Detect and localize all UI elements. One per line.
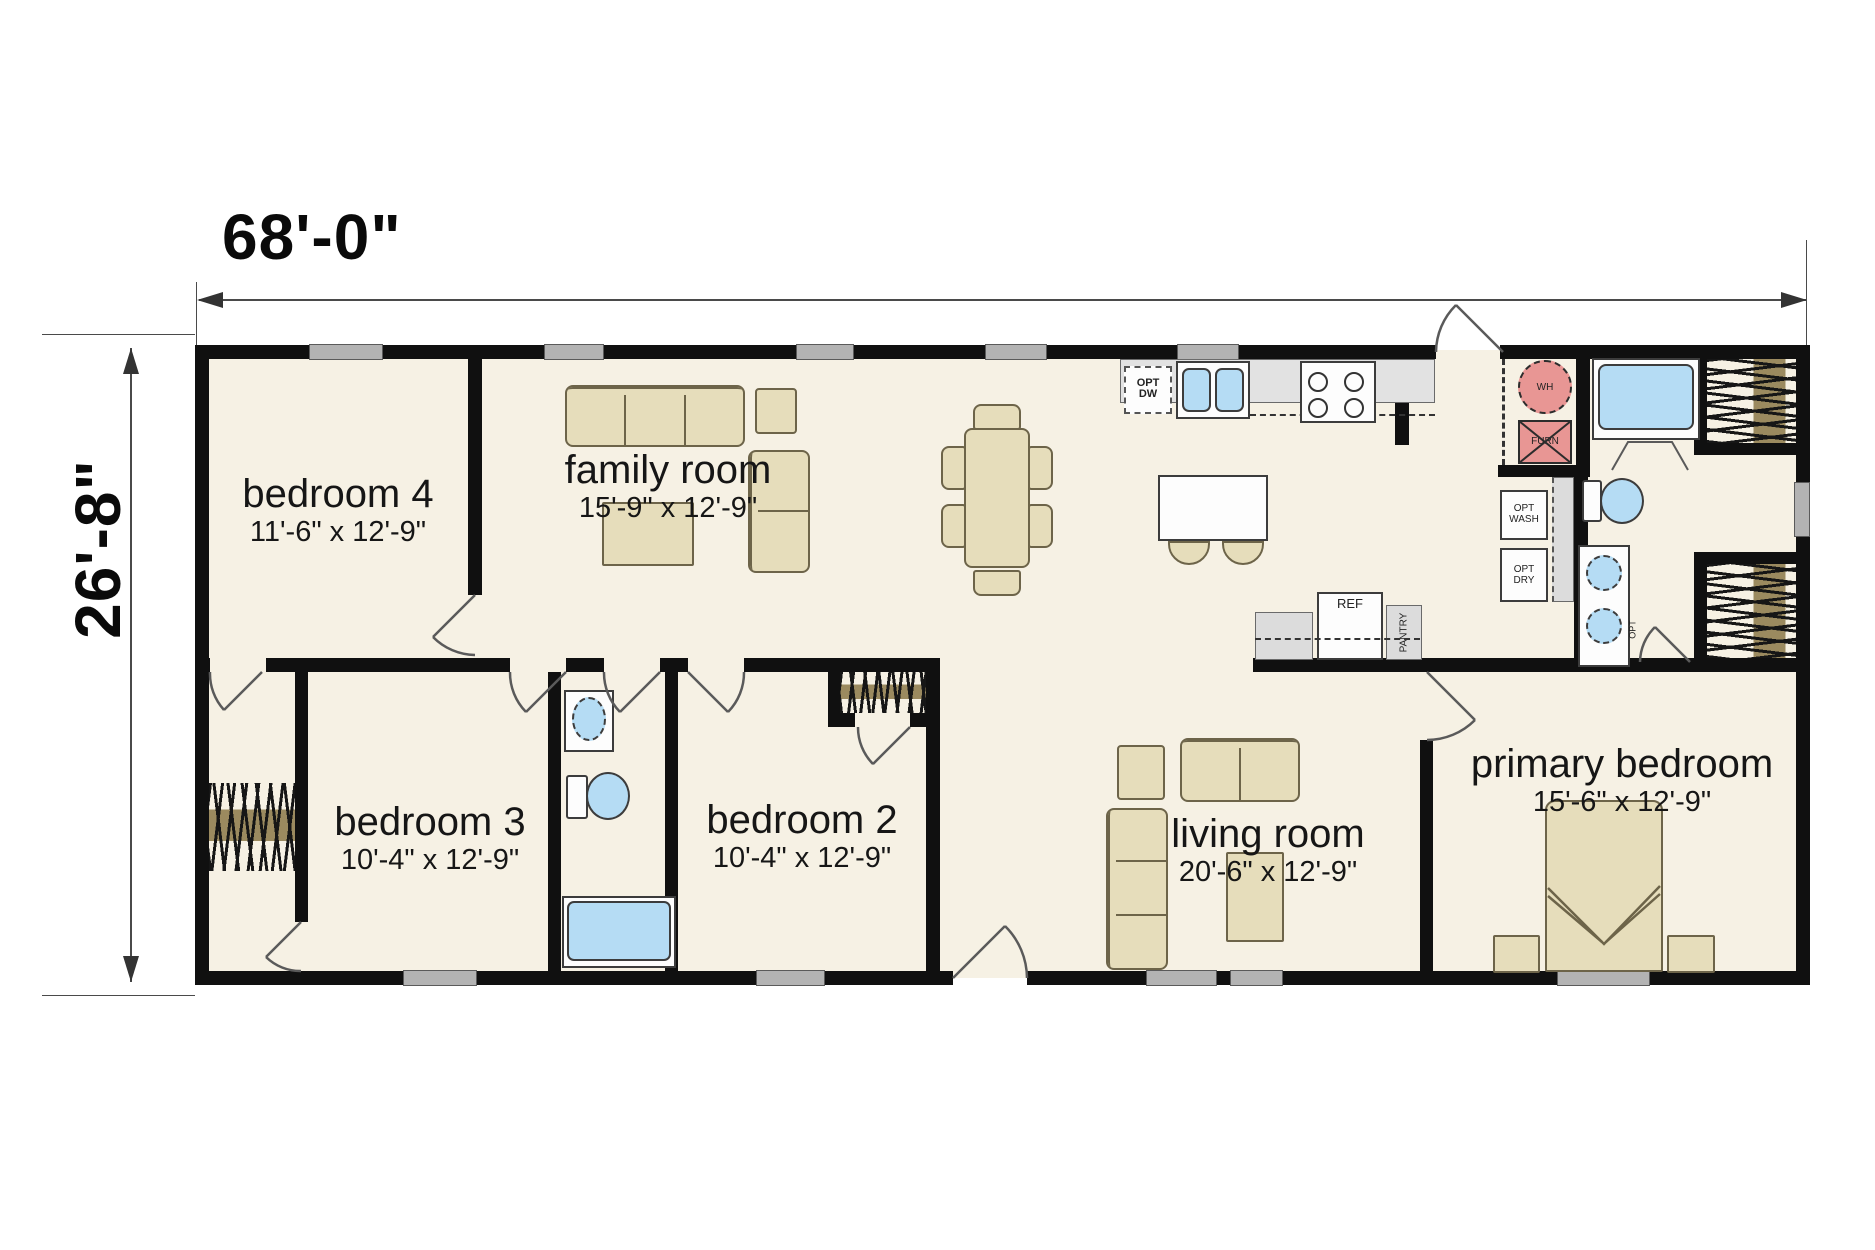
extension-line-left-bottom	[42, 995, 195, 996]
bath2-sink	[572, 697, 606, 741]
wall-bottom-right	[1027, 971, 1810, 985]
room-label-bedroom3: bedroom 3	[334, 800, 525, 845]
room-size-bedroom4: 11'-6" x 12'-9"	[250, 516, 426, 549]
wall-hall-e	[744, 658, 940, 672]
optional-door-label: OPT	[1628, 607, 1639, 653]
dimension-arrow-right	[1781, 292, 1807, 308]
furnace-label: FURN	[1520, 436, 1570, 447]
bath2-toilet-bowl	[586, 772, 630, 820]
living-armchair	[1117, 745, 1165, 800]
stove	[1300, 361, 1376, 423]
closet-rod-primary-top	[1707, 359, 1796, 443]
wall-hall-d	[660, 658, 688, 672]
utility-bifold-door	[1502, 359, 1505, 465]
window-living-right	[1230, 970, 1283, 986]
wall-bedroom2-closet-stub	[828, 672, 840, 715]
living-sofa-cushion-line-2	[1116, 914, 1166, 916]
room-size-family: 15'-9" x 12'-9"	[579, 492, 757, 525]
room-label-bedroom4: bedroom 4	[242, 472, 433, 517]
room-label-living: living room	[1171, 812, 1364, 857]
room-size-bedroom3: 10'-4" x 12'-9"	[341, 844, 519, 877]
bathtub	[1598, 364, 1694, 430]
floor-plan: 68'-0" 26'-8"	[0, 0, 1875, 1250]
dishwasher-label: OPT DW	[1128, 378, 1168, 400]
sink-basin-left	[1182, 368, 1211, 412]
extension-line-top-left	[196, 282, 197, 345]
wall-kitchen-primary	[1253, 658, 1810, 672]
room-label-family: family room	[565, 448, 772, 493]
toilet-bowl	[1600, 478, 1644, 524]
vanity-sink-bottom	[1586, 608, 1622, 644]
wall-bedroom2-closet-b	[910, 713, 938, 727]
room-size-primary: 15'-6" x 12'-9"	[1533, 786, 1711, 819]
dimension-line-left	[130, 348, 132, 982]
family-sofa	[565, 385, 745, 447]
wall-closetB-top	[1694, 552, 1810, 564]
vanity-sink-top	[1586, 555, 1622, 591]
dining-chair-left-2	[941, 504, 966, 548]
window-bedroom2	[756, 970, 825, 986]
living-sofa	[1106, 808, 1168, 970]
dimension-arrow-down	[123, 956, 139, 982]
window-bedroom3	[403, 970, 477, 986]
living-sofa-cushion-line-1	[1116, 860, 1166, 862]
wall-closet-bedroom3	[295, 672, 308, 922]
closet-rod-primary-bottom	[1707, 564, 1796, 658]
pantry-label: PANTRY	[1399, 603, 1410, 663]
wall-hall-b	[266, 658, 510, 672]
overall-width-dimension: 68'-0"	[222, 200, 402, 274]
window-bedroom4	[309, 344, 383, 360]
primary-nightstand-right	[1667, 935, 1715, 973]
dining-chair-right-1	[1028, 446, 1053, 490]
utility-counter	[1552, 477, 1574, 602]
dryer-label: OPT DRY	[1503, 564, 1545, 586]
dimension-arrow-up	[123, 348, 139, 374]
living-loveseat-cushion-line	[1239, 748, 1241, 800]
family-sofa-cushion-line-1	[624, 395, 626, 445]
refrigerator-label: REF	[1324, 598, 1376, 609]
window-bath-right	[1794, 482, 1810, 537]
extension-line-top-right	[1806, 240, 1807, 345]
wall-bedroom2-closet-a	[828, 713, 855, 727]
closet-rod-bedroom3	[209, 783, 295, 871]
overall-height-dimension: 26'-8"	[61, 429, 135, 669]
window-family-right	[796, 344, 854, 360]
closet-rod-bedroom2	[840, 672, 926, 713]
window-living-left	[1146, 970, 1217, 986]
wall-bedroom4-family	[468, 345, 482, 595]
room-size-bedroom2: 10'-4" x 12'-9"	[713, 842, 891, 875]
wall-closetB-left	[1694, 564, 1707, 660]
wall-top-right	[1500, 345, 1810, 359]
bath2-tub	[567, 901, 671, 961]
room-label-bedroom2: bedroom 2	[706, 798, 897, 843]
window-family-left	[544, 344, 604, 360]
wall-hall-a	[195, 658, 210, 672]
dining-chair-top	[973, 404, 1021, 430]
dining-chair-right-2	[1028, 504, 1053, 548]
room-size-living: 20'-6" x 12'-9"	[1179, 856, 1357, 889]
washer-label: OPT WASH	[1503, 503, 1545, 525]
sink-basin-right	[1215, 368, 1244, 412]
room-label-primary: primary bedroom	[1471, 742, 1773, 787]
window-kitchen-sink	[1177, 344, 1239, 360]
dimension-arrow-left	[197, 292, 223, 308]
window-dining	[985, 344, 1047, 360]
family-ottoman	[755, 388, 797, 434]
water-heater-label: WH	[1520, 382, 1570, 393]
dimension-line-top	[199, 299, 1807, 301]
toilet-tank	[1582, 480, 1602, 522]
primary-nightstand-left	[1493, 935, 1540, 973]
kitchen-counter-low	[1255, 612, 1313, 660]
dining-table	[964, 428, 1030, 568]
primary-bed	[1545, 800, 1663, 972]
family-loveseat-cushion-line	[758, 510, 808, 512]
dining-chair-left-1	[941, 446, 966, 490]
wall-hall-c	[566, 658, 604, 672]
bath2-toilet-tank	[566, 775, 588, 819]
wall-bedroom3-bath	[548, 672, 561, 971]
wall-living-primary	[1420, 740, 1433, 971]
wall-utility-right	[1576, 345, 1590, 477]
kitchen-low-dashed-edge	[1255, 638, 1420, 640]
family-sofa-cushion-line-2	[684, 395, 686, 445]
island-counter	[1158, 475, 1268, 541]
dining-chair-bottom	[973, 570, 1021, 596]
window-primary	[1557, 970, 1650, 986]
extension-line-left-top	[42, 334, 195, 335]
wall-bottom-left	[195, 971, 953, 985]
wall-closetA-bottom	[1694, 443, 1810, 455]
